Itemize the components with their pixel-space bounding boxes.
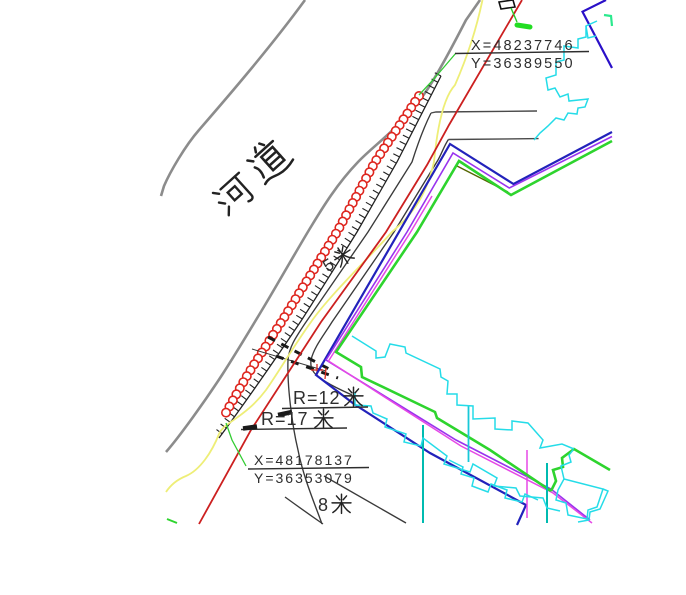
svg-text:X=48178137: X=48178137 <box>254 452 354 468</box>
svg-text:R=12: R=12 <box>293 388 341 408</box>
svg-text:Y=36353079: Y=36353079 <box>254 470 354 486</box>
svg-text:Y=36389550: Y=36389550 <box>471 56 575 72</box>
svg-text:R=17: R=17 <box>261 409 309 429</box>
svg-text:8: 8 <box>318 495 328 515</box>
